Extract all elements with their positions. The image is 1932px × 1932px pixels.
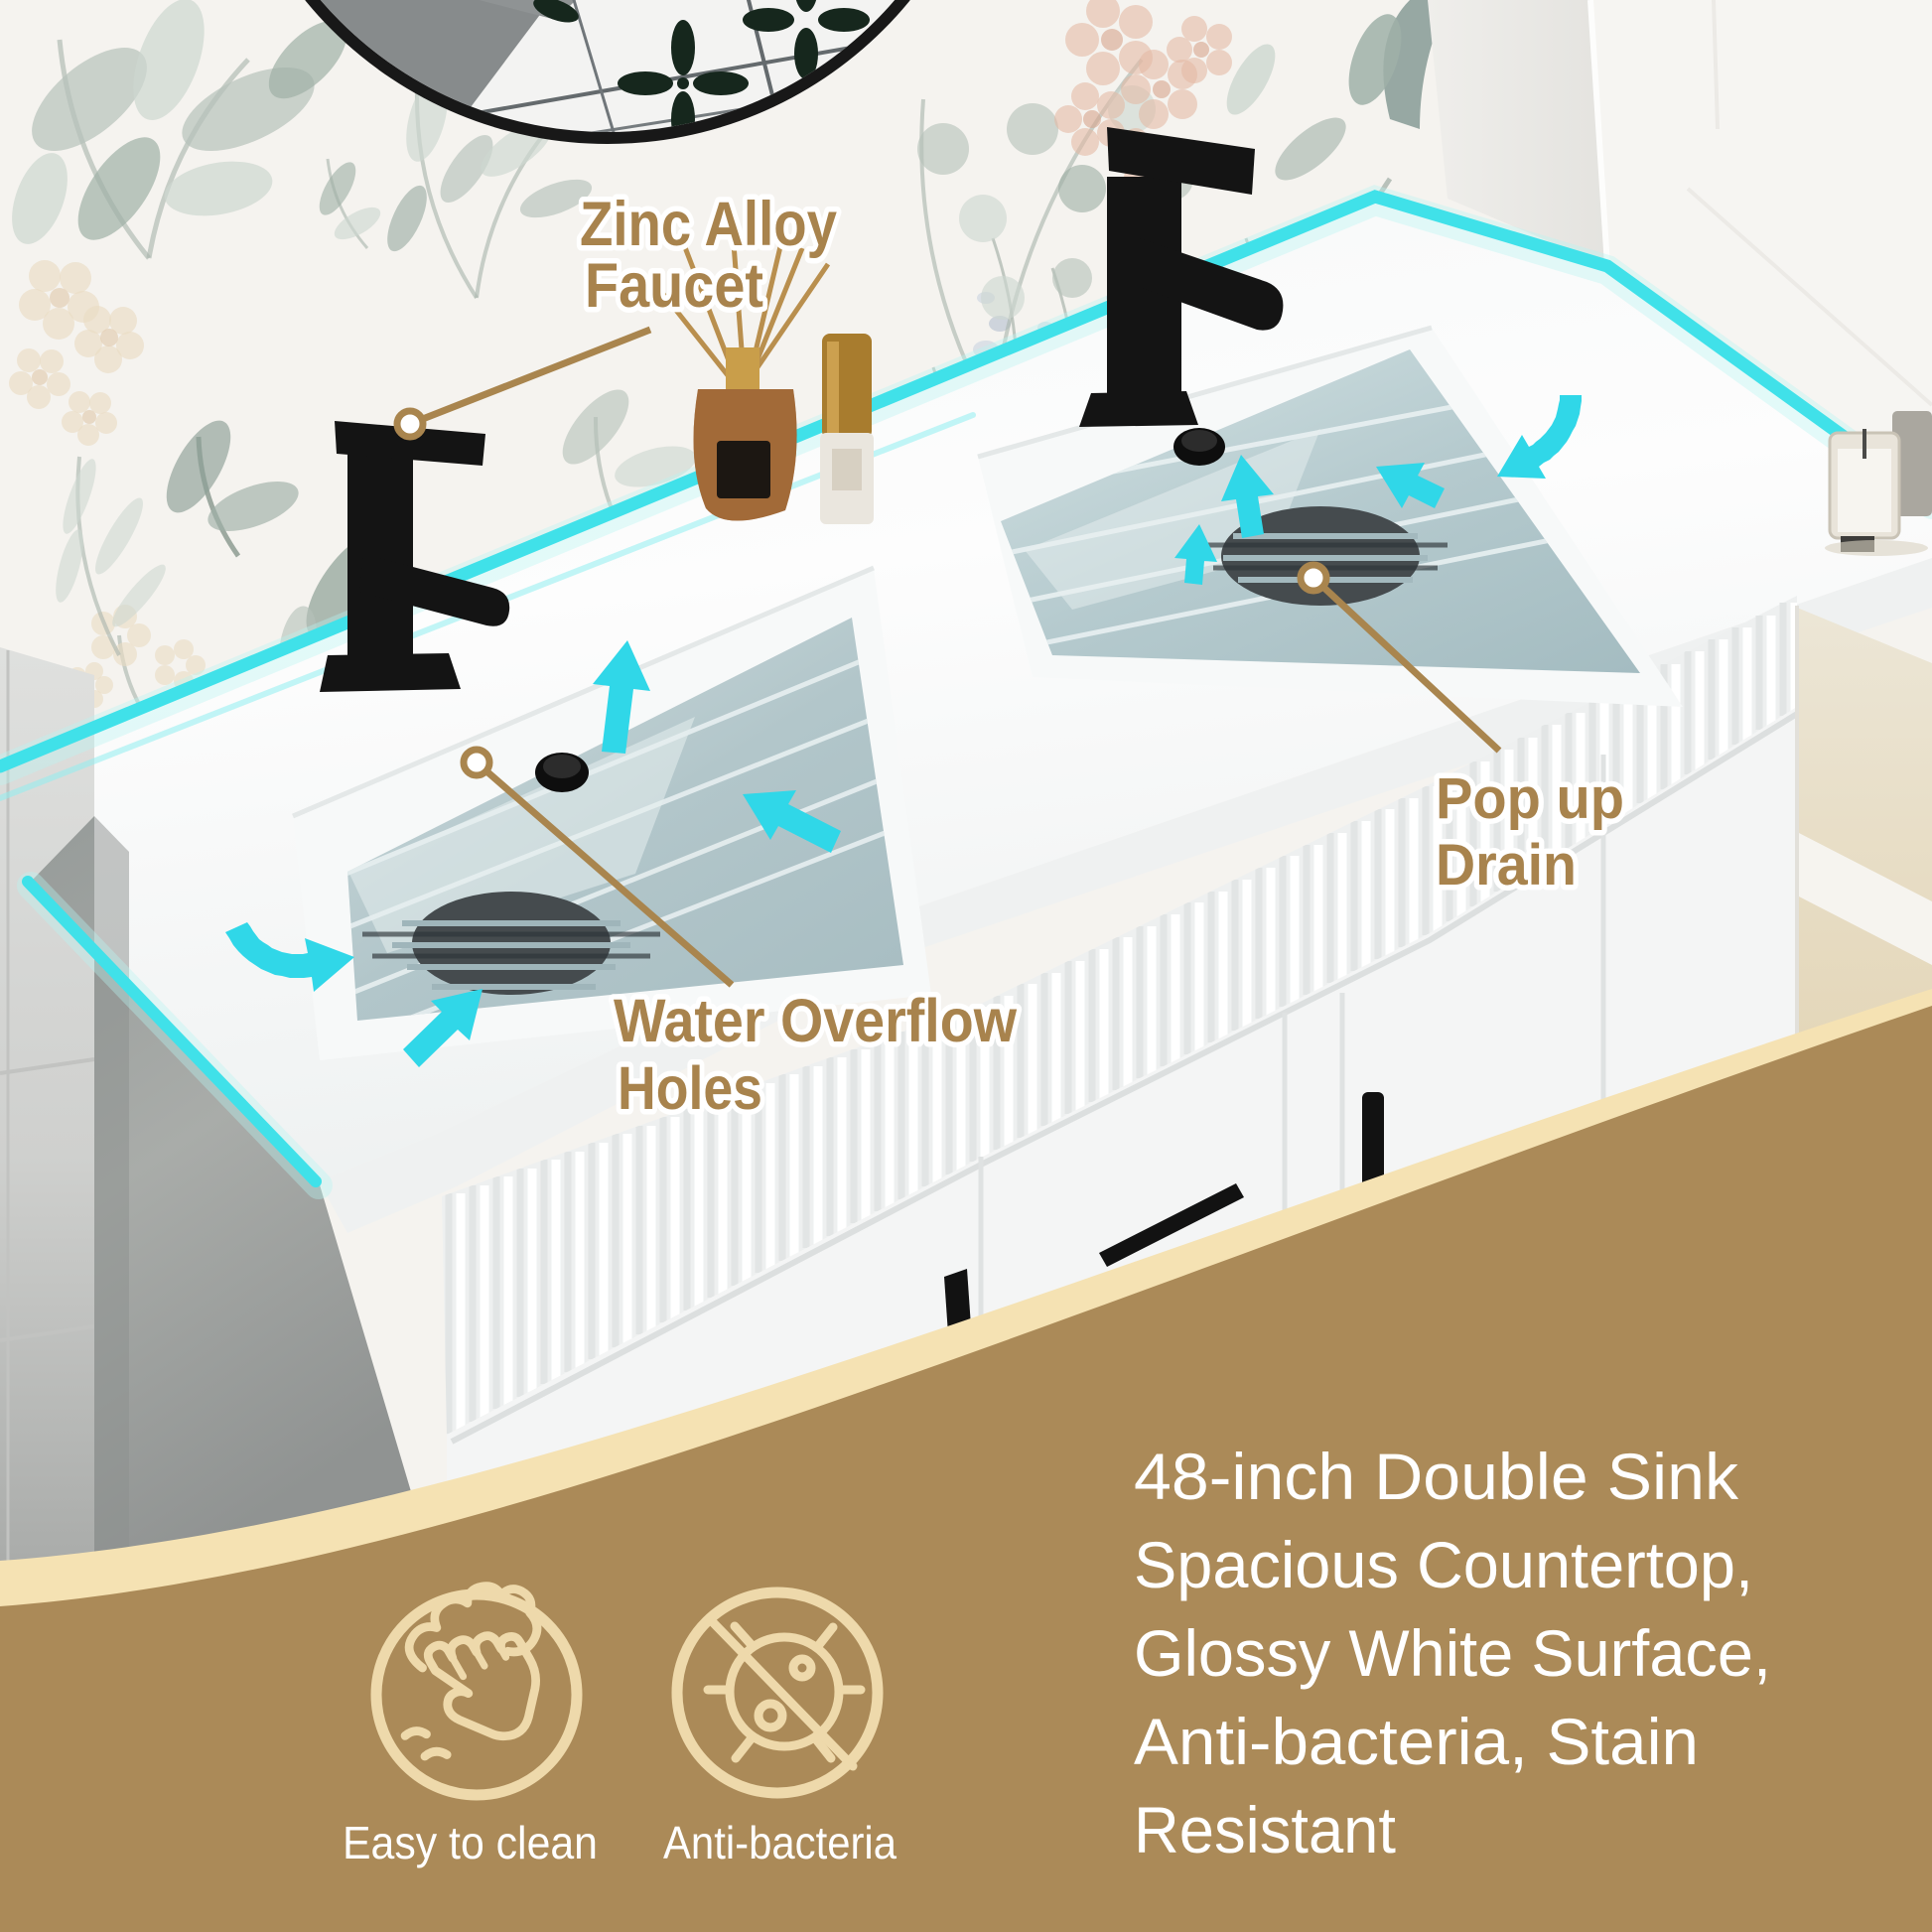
svg-text:Spacious Countertop,: Spacious Countertop, — [1134, 1528, 1753, 1601]
svg-text:Drain: Drain — [1436, 833, 1577, 897]
svg-text:Faucet: Faucet — [585, 251, 763, 321]
svg-text:48-inch Double Sink: 48-inch Double Sink — [1134, 1440, 1739, 1513]
svg-text:Zinc Alloy: Zinc Alloy — [580, 190, 837, 259]
svg-text:Water Overflow: Water Overflow — [614, 987, 1018, 1054]
svg-text:Anti-bacteria, Stain: Anti-bacteria, Stain — [1134, 1705, 1699, 1778]
svg-text:Resistant: Resistant — [1134, 1793, 1396, 1866]
svg-text:Pop up: Pop up — [1436, 766, 1624, 831]
svg-text:Anti-bacteria: Anti-bacteria — [663, 1817, 897, 1868]
svg-text:Easy to clean: Easy to clean — [343, 1817, 598, 1868]
svg-text:Holes: Holes — [618, 1054, 762, 1122]
svg-text:Glossy White Surface,: Glossy White Surface, — [1134, 1616, 1771, 1690]
